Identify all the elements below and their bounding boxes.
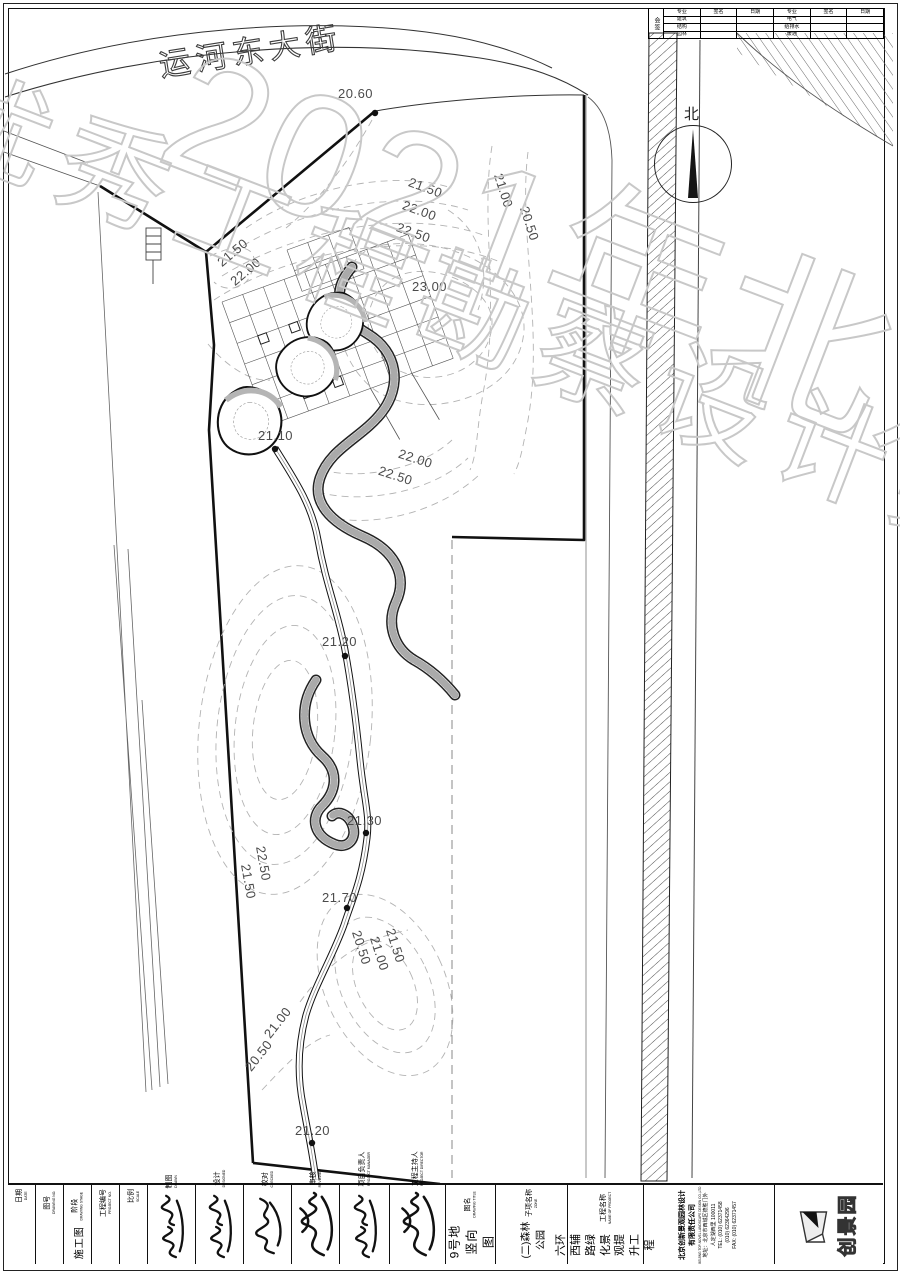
field-label: 工程名称	[599, 1194, 607, 1222]
company-name-en: BEIJING TOP-NOVEL LANDSCAPE DESIGN CO.,L…	[699, 1186, 704, 1263]
company-tel: (010) 62364296	[725, 1182, 732, 1268]
field-label-en: DESIGNED	[221, 1169, 225, 1187]
field-label: 比例	[127, 1189, 135, 1203]
titleblock-col-stage: 施工图 阶段DRAWING STAGE	[64, 1185, 92, 1264]
countersign-header: 专业	[664, 8, 701, 16]
field-label: 工程编号	[99, 1189, 107, 1217]
project-name-value: 六环西辅路绿化景观提升工程	[554, 1229, 658, 1261]
elevation-label: 21.30	[347, 813, 382, 828]
field-label-en: PROJECT NO.	[107, 1191, 111, 1214]
field-label: 图号	[43, 1195, 51, 1209]
drawing-sheet: 2021年北京市 优秀工程勘察设计奖 运河东大街 北 20.60 21.50 2…	[0, 0, 900, 1273]
zone-value: (二)森林公园	[517, 1219, 547, 1261]
north-label: 北	[684, 103, 699, 124]
company-name: 有限责任公司	[688, 1182, 698, 1268]
countersign-cell-empty	[701, 23, 738, 31]
titleblock-col-reviewed: 审核REVIEWED	[292, 1185, 340, 1264]
titleblock-col-drawing-title: 9号地竖向图 图名DRAWING TITLE	[446, 1185, 496, 1264]
countersign-cell-empty	[847, 31, 884, 39]
field-label: 审核	[309, 1171, 317, 1185]
titleblock-col-scale: 比例SCALE	[120, 1185, 148, 1264]
field-label: 设计	[213, 1171, 221, 1185]
countersign-cell-empty	[701, 16, 738, 24]
elevation-label: 21.20	[322, 634, 357, 649]
signature-scribble	[400, 1191, 436, 1261]
countersign-discipline: 给排水	[774, 23, 811, 31]
site-plan-linework	[0, 0, 900, 1273]
titleblock-col-drawing-no: 图号DRAWING NO.	[36, 1185, 64, 1264]
titleblock-col-checked: 校对CHECKED	[244, 1185, 292, 1264]
company-name: 北京创新景观园林设计	[678, 1182, 688, 1268]
company-logo-icon	[799, 1204, 833, 1246]
titleblock-col-designed: 设计DESIGNED	[196, 1185, 244, 1264]
field-label-en: REVIEWED	[317, 1169, 321, 1187]
signature-scribble	[250, 1191, 286, 1261]
countersign-cell-empty	[737, 23, 774, 31]
countersign-cell-empty	[737, 31, 774, 39]
company-address: 地址：北京市西城区德胜门外	[704, 1182, 711, 1268]
field-label-en: DRAWING TITLE	[472, 1191, 476, 1217]
company-fax: FAX: (010) 62371457	[733, 1182, 740, 1268]
titleblock-col-date: 日期DATE	[8, 1185, 36, 1264]
north-arrow-icon	[654, 125, 732, 203]
elevation-label: 21.70	[322, 890, 357, 905]
countersign-cell-empty	[701, 31, 738, 39]
stage-value: 施工图	[70, 1224, 85, 1260]
countersign-header: 签名	[811, 8, 848, 16]
field-label-en: CHECKED	[269, 1170, 273, 1187]
field-label-en: PROJECT MANAGER	[366, 1152, 370, 1186]
field-label-en: ZONE	[533, 1198, 537, 1207]
signature-scribble	[347, 1191, 383, 1261]
drawing-title-value: 9号地竖向图	[445, 1222, 496, 1261]
field-label-en: PROJECT DIRECTOR	[419, 1151, 423, 1185]
countersign-table: 会签 专业 签名 日期 专业 签名 日期 建筑 电气 结构 给排水 园林 暖通	[648, 8, 884, 39]
countersign-cell-empty	[811, 23, 848, 31]
countersign-cell-empty	[847, 23, 884, 31]
field-label-en: DRAWN	[173, 1175, 177, 1188]
countersign-header: 签名	[701, 8, 738, 16]
field-label-en: DATE	[23, 1191, 27, 1200]
elevation-label: 21.20	[295, 1123, 330, 1138]
countersign-discipline: 结构	[664, 23, 701, 31]
signature-scribble	[154, 1191, 190, 1261]
field-label: 校对	[261, 1172, 269, 1186]
field-label: 制图	[165, 1174, 173, 1188]
countersign-discipline: 电气	[774, 16, 811, 24]
countersign-cell-empty	[847, 16, 884, 24]
field-label-en: SCALE	[135, 1190, 139, 1201]
field-label-en: DRAWING STAGE	[79, 1191, 83, 1220]
company-logo-text: 创景园	[833, 1193, 860, 1256]
countersign-header: 日期	[737, 8, 774, 16]
design-firm-block: 北京创新景观园林设计 有限责任公司 BEIJING TOP-NOVEL LAND…	[678, 1182, 740, 1268]
signature-scribble	[298, 1191, 334, 1261]
countersign-header: 日期	[847, 8, 884, 16]
signature-scribble	[202, 1191, 238, 1261]
elevation-label: 20.60	[338, 86, 373, 101]
countersign-discipline: 建筑	[664, 16, 701, 24]
countersign-cell-empty	[811, 31, 848, 39]
titleblock-col-logo: 创景园	[775, 1185, 883, 1264]
countersign-cell-empty	[811, 16, 848, 24]
countersign-corner-label: 会签	[649, 8, 664, 38]
elevation-label: 21.10	[258, 428, 293, 443]
titleblock-col-drawn: 制图DRAWN	[148, 1185, 196, 1264]
field-label-en: NAME OF PROJECT	[607, 1191, 611, 1223]
titleblock-col-project-no: 工程编号PROJECT NO.	[92, 1185, 120, 1264]
field-label-en: DRAWING NO.	[51, 1191, 55, 1214]
countersign-cell-empty	[737, 16, 774, 24]
titleblock-col-project-manager: 项目负责人PROJECT MANAGER	[340, 1185, 390, 1264]
field-label: 日期	[15, 1189, 23, 1203]
titleblock-col-company: 北京创新景观园林设计 有限责任公司 BEIJING TOP-NOVEL LAND…	[644, 1185, 775, 1264]
company-tel: TEL: (010) 62371458	[718, 1182, 725, 1268]
elevation-label: 23.00	[412, 279, 447, 294]
titleblock-col-project-director: 工程主持人PROJECT DIRECTOR	[390, 1185, 446, 1264]
title-block: 日期DATE 图号DRAWING NO. 施工图 阶段DRAWING STAGE…	[8, 1183, 883, 1264]
company-address: 人定湖西里 100011	[711, 1182, 718, 1268]
field-label: 子项名称	[525, 1189, 533, 1217]
countersign-header: 专业	[774, 8, 811, 16]
titleblock-col-project-name: 六环西辅路绿化景观提升工程 工程名称NAME OF PROJECT	[568, 1185, 644, 1264]
countersign-discipline: 园林	[664, 31, 701, 39]
field-label: 工程主持人	[411, 1151, 419, 1186]
countersign-discipline: 暖通	[774, 31, 811, 39]
field-label: 项目负责人	[358, 1151, 366, 1186]
